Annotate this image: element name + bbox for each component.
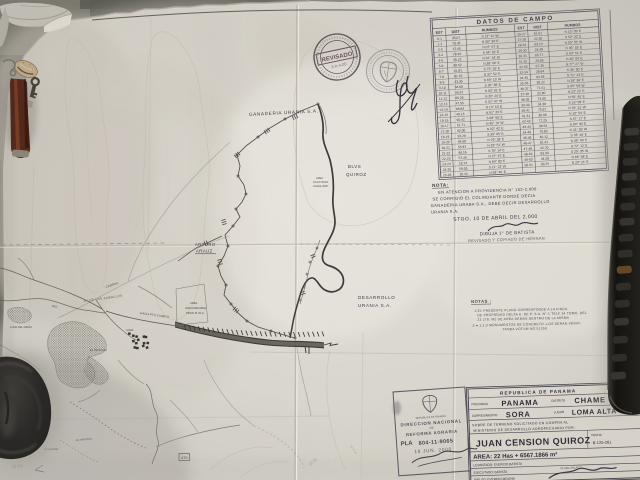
svg-text:63.19: 63.19 [534, 42, 543, 46]
svg-text:EST: EST [436, 31, 444, 35]
svg-text:PROP. M.I.D.A.: PROP. M.I.D.A. [186, 311, 205, 315]
svg-text:22-23: 22-23 [442, 157, 451, 161]
svg-text:82.10: 82.10 [454, 74, 463, 78]
svg-text:22HAS+6567: 22HAS+6567 [313, 184, 329, 188]
svg-text:38-39: 38-39 [521, 97, 530, 101]
svg-text:14-15: 14-15 [440, 113, 449, 117]
svg-text:AREA: AREA [316, 176, 323, 180]
svg-text:13-14: 13-14 [439, 108, 448, 112]
svg-text:20-21: 20-21 [441, 146, 450, 150]
svg-text:49-50: 49-50 [524, 157, 533, 161]
svg-text:37-38: 37-38 [520, 92, 529, 96]
svg-text:NOTAS :: NOTAS : [471, 299, 492, 304]
svg-text:27-28: 27-28 [517, 37, 526, 41]
svg-text:43.39: 43.39 [454, 79, 463, 83]
svg-text:41.81: 41.81 [454, 68, 463, 72]
svg-text:77.25: 77.25 [539, 118, 548, 122]
svg-text:67.35: 67.35 [536, 64, 545, 68]
svg-text:75.67: 75.67 [538, 107, 547, 111]
svg-text:CORREGIMIENTO: CORREGIMIENTO [472, 413, 498, 418]
svg-text:0-1: 0-1 [437, 37, 442, 41]
svg-text:96.16: 96.16 [458, 150, 467, 154]
svg-text:45-46: 45-46 [523, 136, 532, 140]
svg-text:40-41: 40-41 [521, 108, 530, 112]
svg-text:DISTRITO: DISTRITO [551, 398, 566, 402]
svg-text:36.96: 36.96 [538, 113, 547, 117]
svg-text:33-34: 33-34 [519, 70, 528, 74]
svg-text:7-8: 7-8 [439, 75, 444, 79]
svg-text:9-10: 9-10 [439, 86, 446, 90]
svg-text:34-35: 34-35 [520, 76, 529, 80]
svg-text:53.29: 53.29 [457, 134, 466, 138]
svg-text:47-48: 47-48 [524, 147, 533, 151]
svg-text:PROVINCIA: PROVINCIA [471, 402, 488, 407]
svg-text:28.64: 28.64 [536, 69, 545, 73]
svg-text:46-47: 46-47 [523, 141, 532, 145]
svg-text:DIBUJO: EVERCIO MOLINA: DIBUJO: EVERCIO MOLINA [474, 477, 516, 480]
svg-text:59.03: 59.03 [459, 167, 468, 171]
svg-text:94.58: 94.58 [458, 139, 467, 143]
svg-text:B-125-261: B-125-261 [593, 439, 613, 445]
svg-text:NOTA:: NOTA: [432, 182, 449, 188]
svg-text:25-26: 25-26 [443, 173, 452, 177]
svg-text:51.71: 51.71 [457, 123, 466, 127]
svg-text:LOMA DEL MEDIO: LOMA DEL MEDIO [10, 325, 32, 329]
svg-text:LUGAR: LUGAR [554, 410, 565, 414]
svg-text:78.94: 78.94 [453, 52, 462, 56]
svg-text:1-2: 1-2 [437, 42, 442, 46]
svg-text:21-22: 21-22 [442, 151, 451, 155]
svg-text:8-9: 8-9 [440, 80, 445, 84]
svg-text:24.48: 24.48 [535, 47, 544, 51]
svg-text:19-20: 19-20 [441, 140, 450, 144]
svg-text:22.90: 22.90 [534, 37, 543, 41]
svg-text:12-13: 12-13 [439, 102, 448, 106]
svg-text:38.54: 38.54 [539, 124, 548, 128]
svg-text:LOMA: LOMA [126, 328, 134, 332]
svg-text:83.99: 83.99 [540, 151, 549, 155]
svg-text:10-11: 10-11 [438, 91, 447, 95]
svg-text:DIST: DIST [452, 30, 461, 34]
svg-text:4-5: 4-5 [438, 59, 443, 63]
svg-text:45.97: 45.97 [455, 90, 464, 94]
svg-text:PLA: PLA [400, 441, 413, 448]
svg-text:40.12: 40.12 [539, 135, 548, 139]
svg-text:35.07: 35.07 [452, 36, 461, 40]
svg-text:ARTURO: ARTURO [195, 242, 216, 247]
svg-text:EL PICACHO: EL PICACHO [90, 348, 108, 352]
svg-text:80.52: 80.52 [453, 63, 462, 67]
svg-text:42-43: 42-43 [522, 119, 531, 123]
svg-text:URANIA S.A.: URANIA S.A. [431, 209, 459, 215]
svg-text:INADJUDICABLE: INADJUDICABLE [185, 306, 206, 310]
svg-text:20.32: 20.32 [459, 172, 468, 176]
svg-text:30.22: 30.22 [536, 80, 545, 84]
svg-text:44.28: 44.28 [541, 157, 550, 161]
svg-text:ARAUZ: ARAUZ [196, 249, 213, 254]
svg-text:65.77: 65.77 [535, 53, 544, 57]
svg-text:32-33: 32-33 [519, 65, 528, 69]
svg-text:49.13: 49.13 [456, 112, 465, 116]
svg-text:90.42: 90.42 [456, 118, 465, 122]
svg-text:76.36: 76.36 [452, 41, 461, 45]
svg-text:85.57: 85.57 [541, 162, 550, 166]
svg-text:2-3: 2-3 [438, 48, 443, 52]
svg-text:55.87: 55.87 [458, 145, 467, 149]
svg-text:EST: EST [517, 26, 525, 30]
svg-text:24-25: 24-25 [443, 167, 452, 171]
svg-text:44-45: 44-45 [523, 130, 532, 134]
svg-text:5-6: 5-6 [439, 64, 444, 68]
svg-text:15-16: 15-16 [440, 118, 449, 122]
svg-text:URANIA S.A.: URANIA S.A. [358, 303, 392, 308]
svg-text:AREA: AREA [190, 301, 198, 305]
svg-text:28-29: 28-29 [518, 43, 527, 47]
svg-text:69.93: 69.93 [536, 75, 545, 79]
svg-text:92.00: 92.00 [457, 128, 466, 132]
svg-text:17-18: 17-18 [440, 129, 449, 133]
svg-text:73.09: 73.09 [537, 97, 546, 101]
svg-text:16-17: 16-17 [440, 124, 449, 128]
svg-text:39.23: 39.23 [453, 58, 462, 62]
svg-text:11-12: 11-12 [439, 97, 448, 101]
svg-text:DESARROLLO: DESARROLLO [358, 295, 395, 300]
svg-text:31-32: 31-32 [519, 59, 528, 63]
svg-text:43-44: 43-44 [522, 125, 531, 129]
svg-text:26-27: 26-27 [517, 32, 526, 36]
svg-text:42.70: 42.70 [540, 146, 549, 150]
svg-text:3-4: 3-4 [438, 53, 443, 57]
svg-text:18.74: 18.74 [459, 161, 468, 165]
svg-text:37.65: 37.65 [452, 47, 461, 51]
svg-text:470: 470 [181, 455, 188, 460]
svg-text:41-42: 41-42 [522, 114, 531, 118]
svg-text:SORA: SORA [506, 410, 531, 420]
svg-text:36-37: 36-37 [520, 87, 529, 91]
svg-text:SOLICITADA: SOLICITADA [313, 180, 328, 184]
svg-text:81.41: 81.41 [540, 140, 549, 144]
svg-text:39-40: 39-40 [521, 103, 530, 107]
svg-text:34.38: 34.38 [538, 102, 547, 106]
svg-text:57.45: 57.45 [459, 156, 468, 160]
svg-text:32.80: 32.80 [537, 91, 546, 95]
svg-text:48-49: 48-49 [524, 152, 533, 156]
svg-text:23-24: 23-24 [442, 162, 451, 166]
svg-text:26.06: 26.06 [535, 58, 544, 62]
svg-text:50-51: 50-51 [524, 163, 533, 167]
svg-text:DIST: DIST [533, 25, 542, 29]
svg-text:M. DEL PALACIO: M. DEL PALACIO [560, 465, 583, 470]
svg-text:6-7: 6-7 [439, 69, 444, 73]
svg-text:61.61: 61.61 [534, 31, 543, 35]
svg-text:86.26: 86.26 [455, 96, 464, 100]
svg-text:79.83: 79.83 [539, 129, 548, 133]
svg-text:FECHA: FECHA [591, 433, 601, 437]
svg-text:71.51: 71.51 [537, 86, 546, 90]
svg-text:CHAME: CHAME [574, 395, 606, 405]
svg-text:QUIROZ: QUIROZ [346, 172, 367, 177]
svg-text:84.68: 84.68 [455, 85, 464, 89]
svg-text:88.84: 88.84 [456, 107, 465, 111]
svg-text:47.55: 47.55 [455, 101, 464, 105]
svg-text:29-30: 29-30 [518, 48, 527, 52]
svg-text:18-19: 18-19 [441, 135, 450, 139]
svg-text:BLVS: BLVS [348, 164, 361, 169]
svg-text:35-36: 35-36 [520, 81, 529, 85]
svg-text:30-31: 30-31 [518, 54, 527, 58]
svg-text:PANAMA: PANAMA [501, 398, 538, 408]
